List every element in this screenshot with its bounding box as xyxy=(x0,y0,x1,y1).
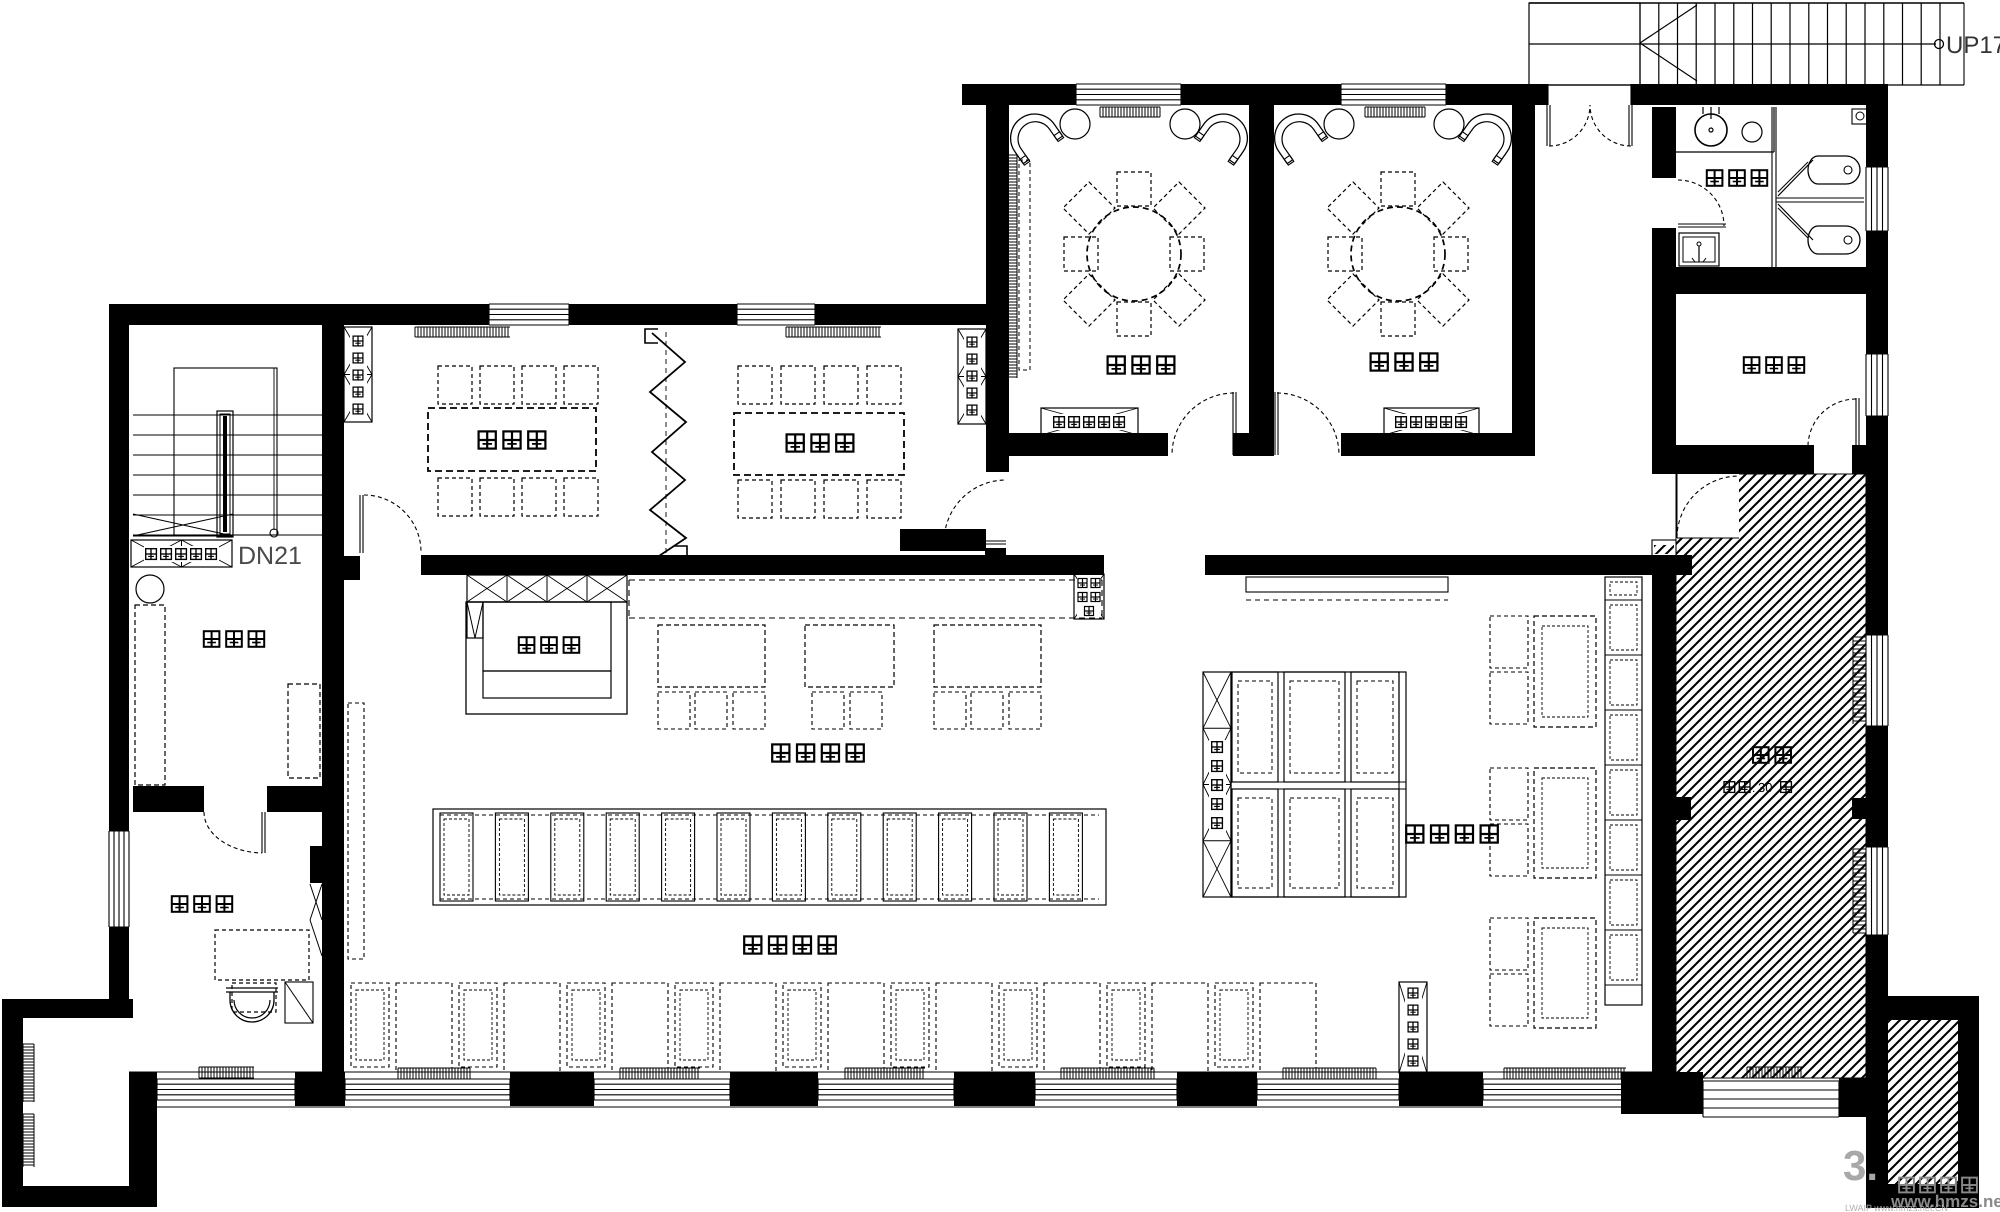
svg-text:3.: 3. xyxy=(1843,1142,1878,1189)
svg-text:DN21: DN21 xyxy=(238,542,302,570)
svg-text:30: 30 xyxy=(1758,780,1772,795)
svg-text:UP17: UP17 xyxy=(1946,32,2000,59)
svg-text:LWAIP www.hmzs.net.CN: LWAIP www.hmzs.net.CN xyxy=(1845,1203,1948,1212)
svg-text::: : xyxy=(1752,781,1755,795)
